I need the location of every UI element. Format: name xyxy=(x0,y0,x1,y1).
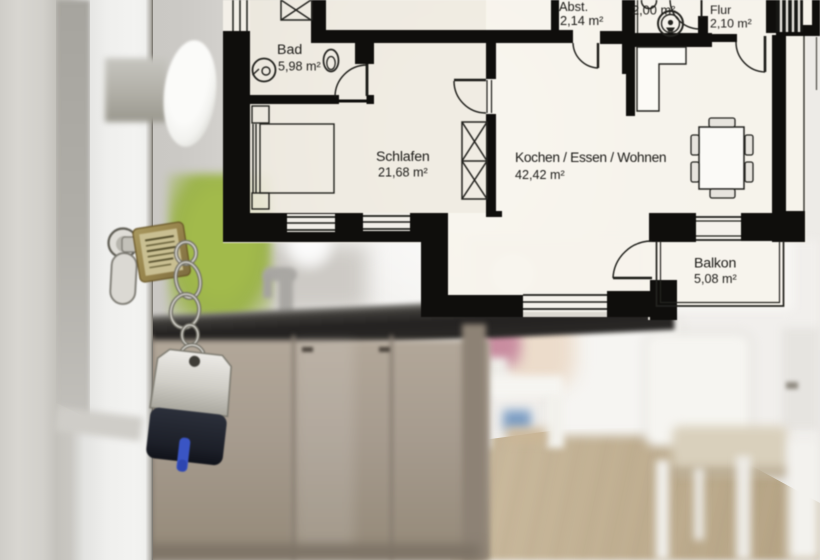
svg-text:2,10 m²: 2,10 m² xyxy=(710,17,752,31)
svg-text:Flur: Flur xyxy=(710,3,731,17)
svg-text:5,98 m²: 5,98 m² xyxy=(278,60,321,74)
svg-text:Schlafen: Schlafen xyxy=(376,149,430,165)
svg-text:Kochen / Essen / Wohnen: Kochen / Essen / Wohnen xyxy=(515,150,666,165)
svg-text:Bad: Bad xyxy=(277,42,302,58)
svg-text:Abst.: Abst. xyxy=(559,0,588,14)
svg-text:5,08 m²: 5,08 m² xyxy=(694,272,737,286)
svg-text:2,14 m²: 2,14 m² xyxy=(560,13,604,28)
svg-text:42,42 m²: 42,42 m² xyxy=(515,168,565,182)
svg-text:2,00 m²: 2,00 m² xyxy=(632,3,676,18)
svg-text:21,68 m²: 21,68 m² xyxy=(378,166,428,180)
svg-text:Balkon: Balkon xyxy=(694,256,736,272)
